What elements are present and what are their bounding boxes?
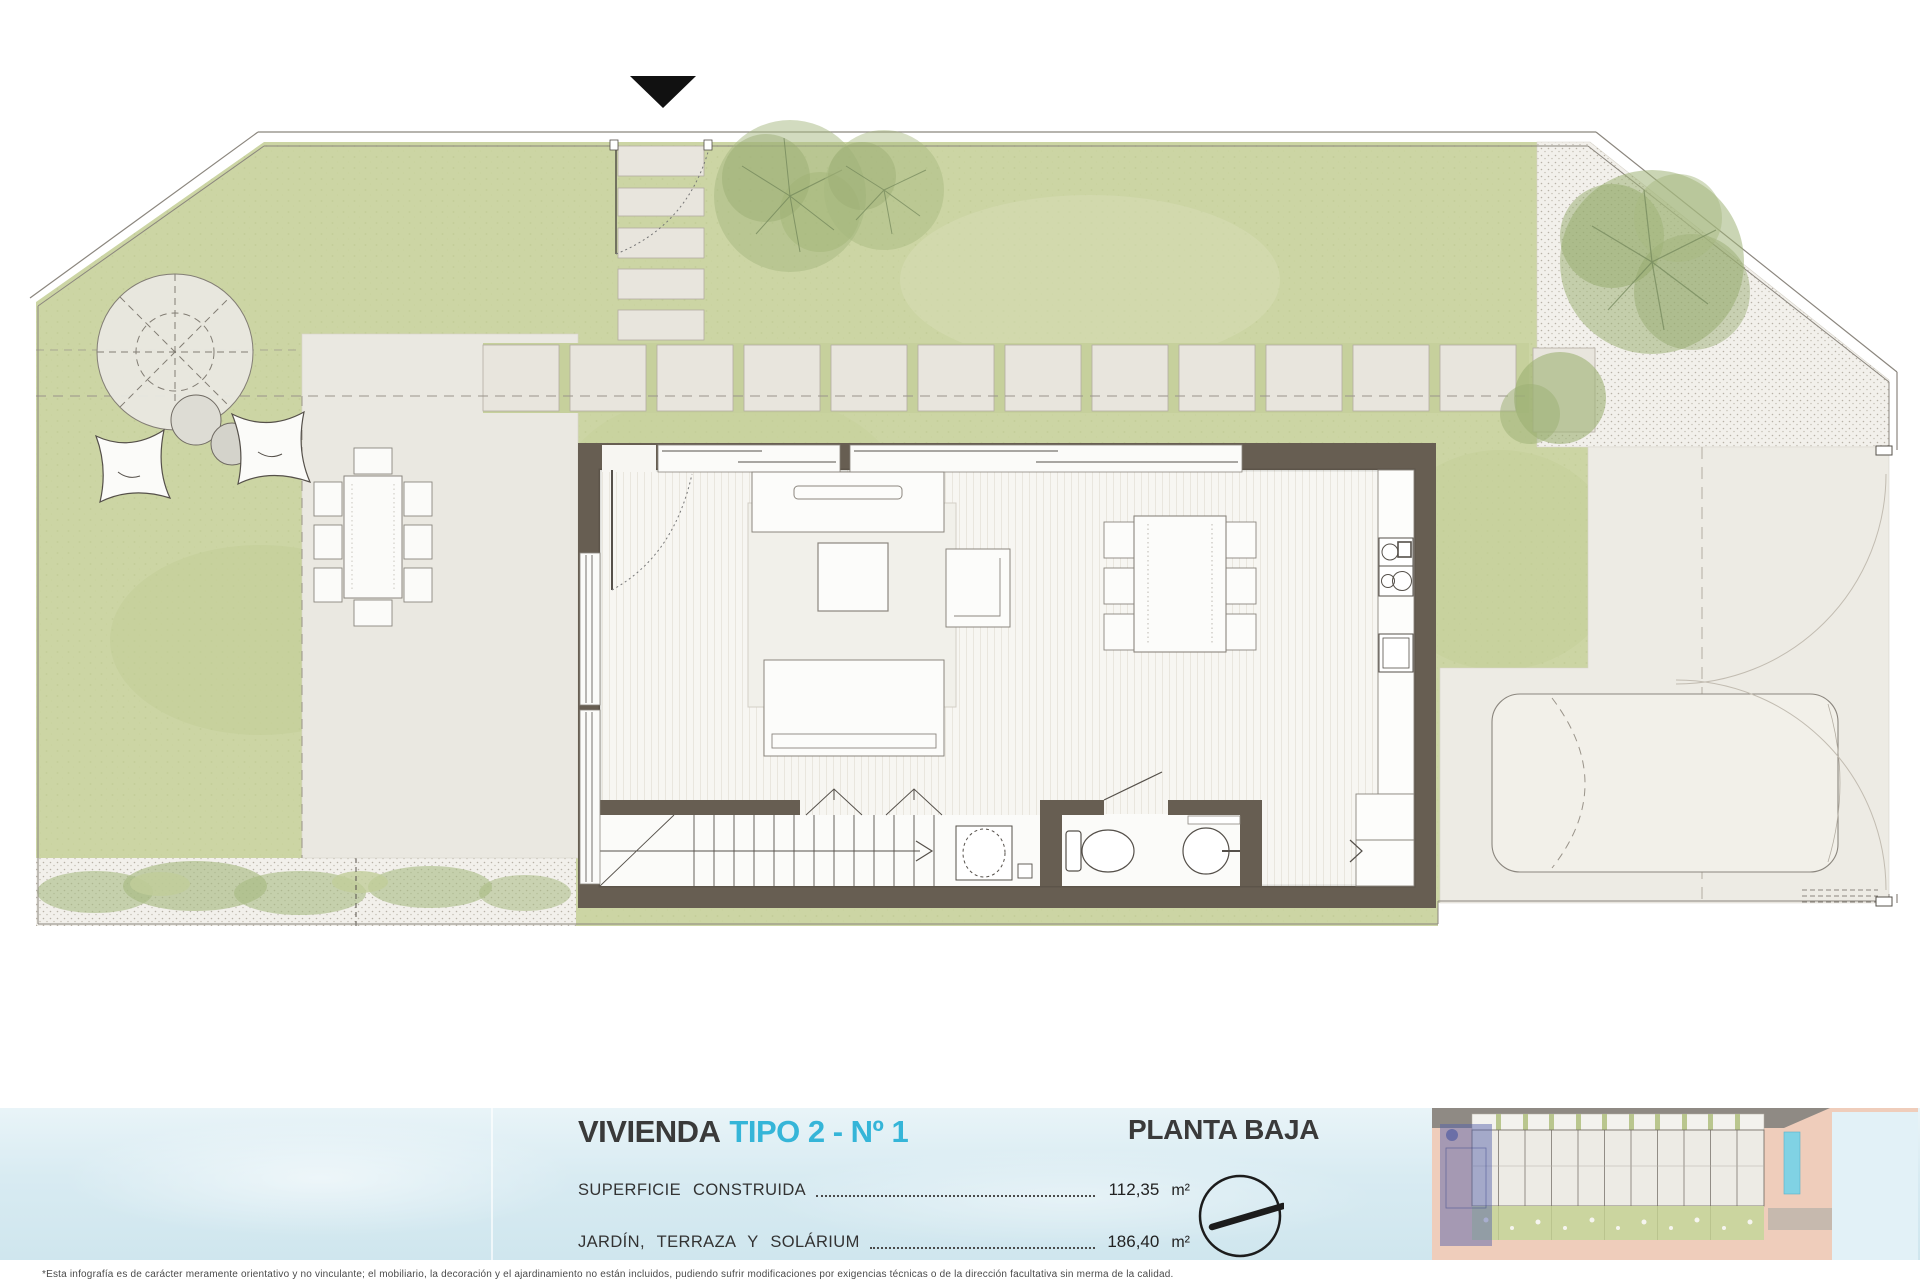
title-main: VIVIENDA (578, 1114, 720, 1149)
dotted-leader (870, 1233, 1096, 1249)
coffee-table (818, 543, 888, 611)
sofa (752, 472, 944, 532)
area-row-garden: JARDÍN, TERRAZA Y SOLÁRIUM 186,40 m² (578, 1232, 1190, 1252)
page-title: VIVIENDATIPO 2 - Nº 1 (578, 1114, 908, 1150)
dotted-leader (816, 1181, 1095, 1197)
tall-cabinets (1350, 794, 1414, 886)
stepping-stones (618, 146, 704, 340)
area-unit: m² (1171, 1182, 1190, 1200)
area-row-built: SUPERFICIE CONSTRUIDA 112,35 m² (578, 1180, 1190, 1200)
armchair (946, 549, 1010, 627)
disclaimer-text: *Esta infografía es de carácter merament… (42, 1269, 1642, 1280)
house (578, 443, 1436, 908)
area-unit: m² (1171, 1234, 1190, 1252)
area-value: 186,40 (1103, 1232, 1159, 1252)
tree (824, 130, 944, 250)
area-label: JARDÍN, TERRAZA Y SOLÁRIUM (578, 1233, 860, 1252)
cooktop-icon (1379, 566, 1413, 596)
daybed-bench (764, 660, 944, 756)
north-arrow-icon (630, 76, 696, 108)
north-compass-icon (1196, 1172, 1284, 1260)
sink-icon (1379, 538, 1413, 566)
shelf (1188, 816, 1240, 824)
car (1492, 694, 1840, 872)
floor-label: PLANTA BAJA (1128, 1114, 1319, 1146)
site-plan-thumbnail (1432, 1108, 1918, 1262)
floor-plan-sheet: VIVIENDATIPO 2 - Nº 1 PLANTA BAJA SUPERF… (0, 0, 1920, 1280)
shrub-bed (36, 858, 576, 926)
highlighted-unit (1440, 1124, 1492, 1246)
tree-large (1560, 170, 1750, 354)
appliance-icon (1379, 634, 1413, 672)
area-value: 112,35 (1103, 1180, 1159, 1200)
title-accent: TIPO 2 - Nº 1 (729, 1114, 908, 1149)
divider (491, 1108, 493, 1262)
area-label: SUPERFICIE CONSTRUIDA (578, 1181, 806, 1200)
toilet-icon (1066, 830, 1134, 872)
dining-set (1104, 516, 1256, 652)
floor-plan-drawing (0, 0, 1920, 1010)
water-texture (60, 1118, 580, 1238)
